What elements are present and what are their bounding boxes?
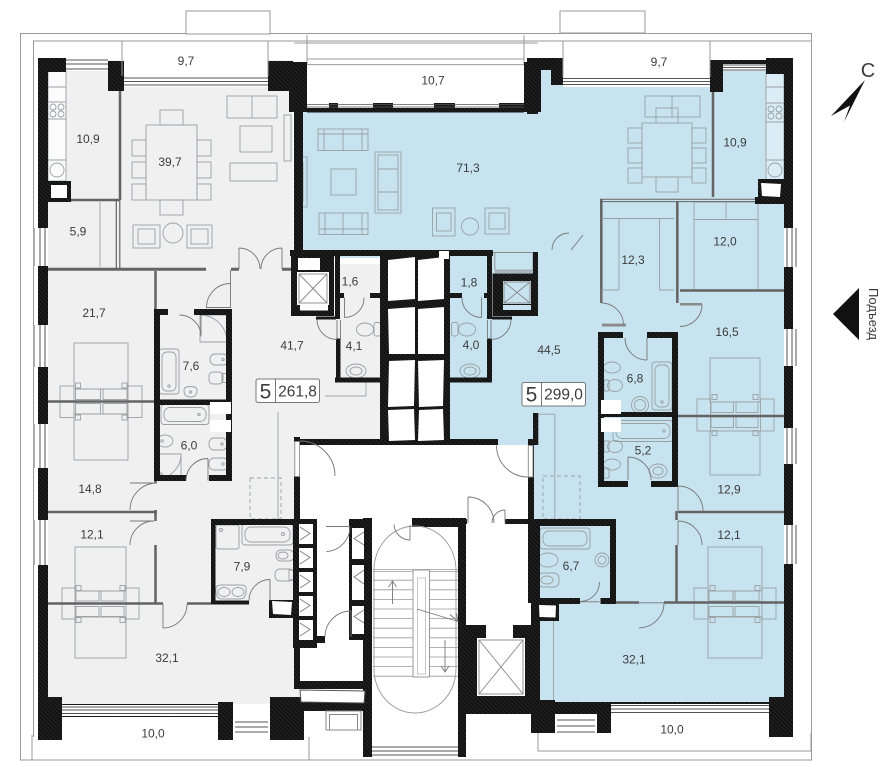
svg-text:12,0: 12,0 [713, 235, 737, 249]
svg-text:299,0: 299,0 [544, 387, 583, 404]
svg-text:41,7: 41,7 [280, 339, 304, 353]
svg-text:10,9: 10,9 [76, 132, 100, 146]
svg-text:12,9: 12,9 [717, 483, 741, 497]
svg-text:6,8: 6,8 [627, 372, 644, 386]
svg-text:10,7: 10,7 [421, 74, 445, 88]
svg-text:6,0: 6,0 [181, 439, 198, 453]
svg-text:71,3: 71,3 [456, 161, 480, 175]
svg-text:261,8: 261,8 [278, 384, 317, 401]
svg-text:5,2: 5,2 [635, 444, 652, 458]
svg-text:4,1: 4,1 [346, 339, 363, 353]
svg-text:4,0: 4,0 [463, 338, 480, 352]
svg-text:14,8: 14,8 [78, 482, 102, 496]
svg-text:12,3: 12,3 [621, 253, 645, 267]
svg-text:32,1: 32,1 [622, 653, 646, 667]
svg-text:10,9: 10,9 [723, 136, 747, 150]
svg-text:32,1: 32,1 [155, 651, 179, 665]
svg-text:5: 5 [260, 381, 272, 404]
svg-text:12,1: 12,1 [80, 528, 104, 542]
svg-text:Подъезд: Подъезд [866, 288, 881, 340]
svg-text:1,8: 1,8 [461, 276, 478, 290]
svg-text:10,0: 10,0 [660, 723, 684, 737]
svg-text:5,9: 5,9 [70, 225, 87, 239]
svg-text:9,7: 9,7 [178, 54, 195, 68]
svg-text:21,7: 21,7 [82, 306, 106, 320]
svg-text:6,7: 6,7 [563, 559, 580, 573]
svg-text:44,5: 44,5 [537, 343, 561, 357]
svg-text:10,0: 10,0 [141, 727, 165, 741]
svg-text:7,6: 7,6 [183, 359, 200, 373]
svg-text:С: С [861, 60, 875, 82]
svg-text:7,9: 7,9 [234, 560, 251, 574]
svg-text:39,7: 39,7 [158, 155, 182, 169]
svg-text:5: 5 [526, 384, 538, 407]
svg-text:9,7: 9,7 [651, 55, 668, 69]
svg-text:16,5: 16,5 [715, 325, 739, 339]
svg-text:1,6: 1,6 [342, 275, 359, 289]
svg-text:12,1: 12,1 [717, 528, 741, 542]
